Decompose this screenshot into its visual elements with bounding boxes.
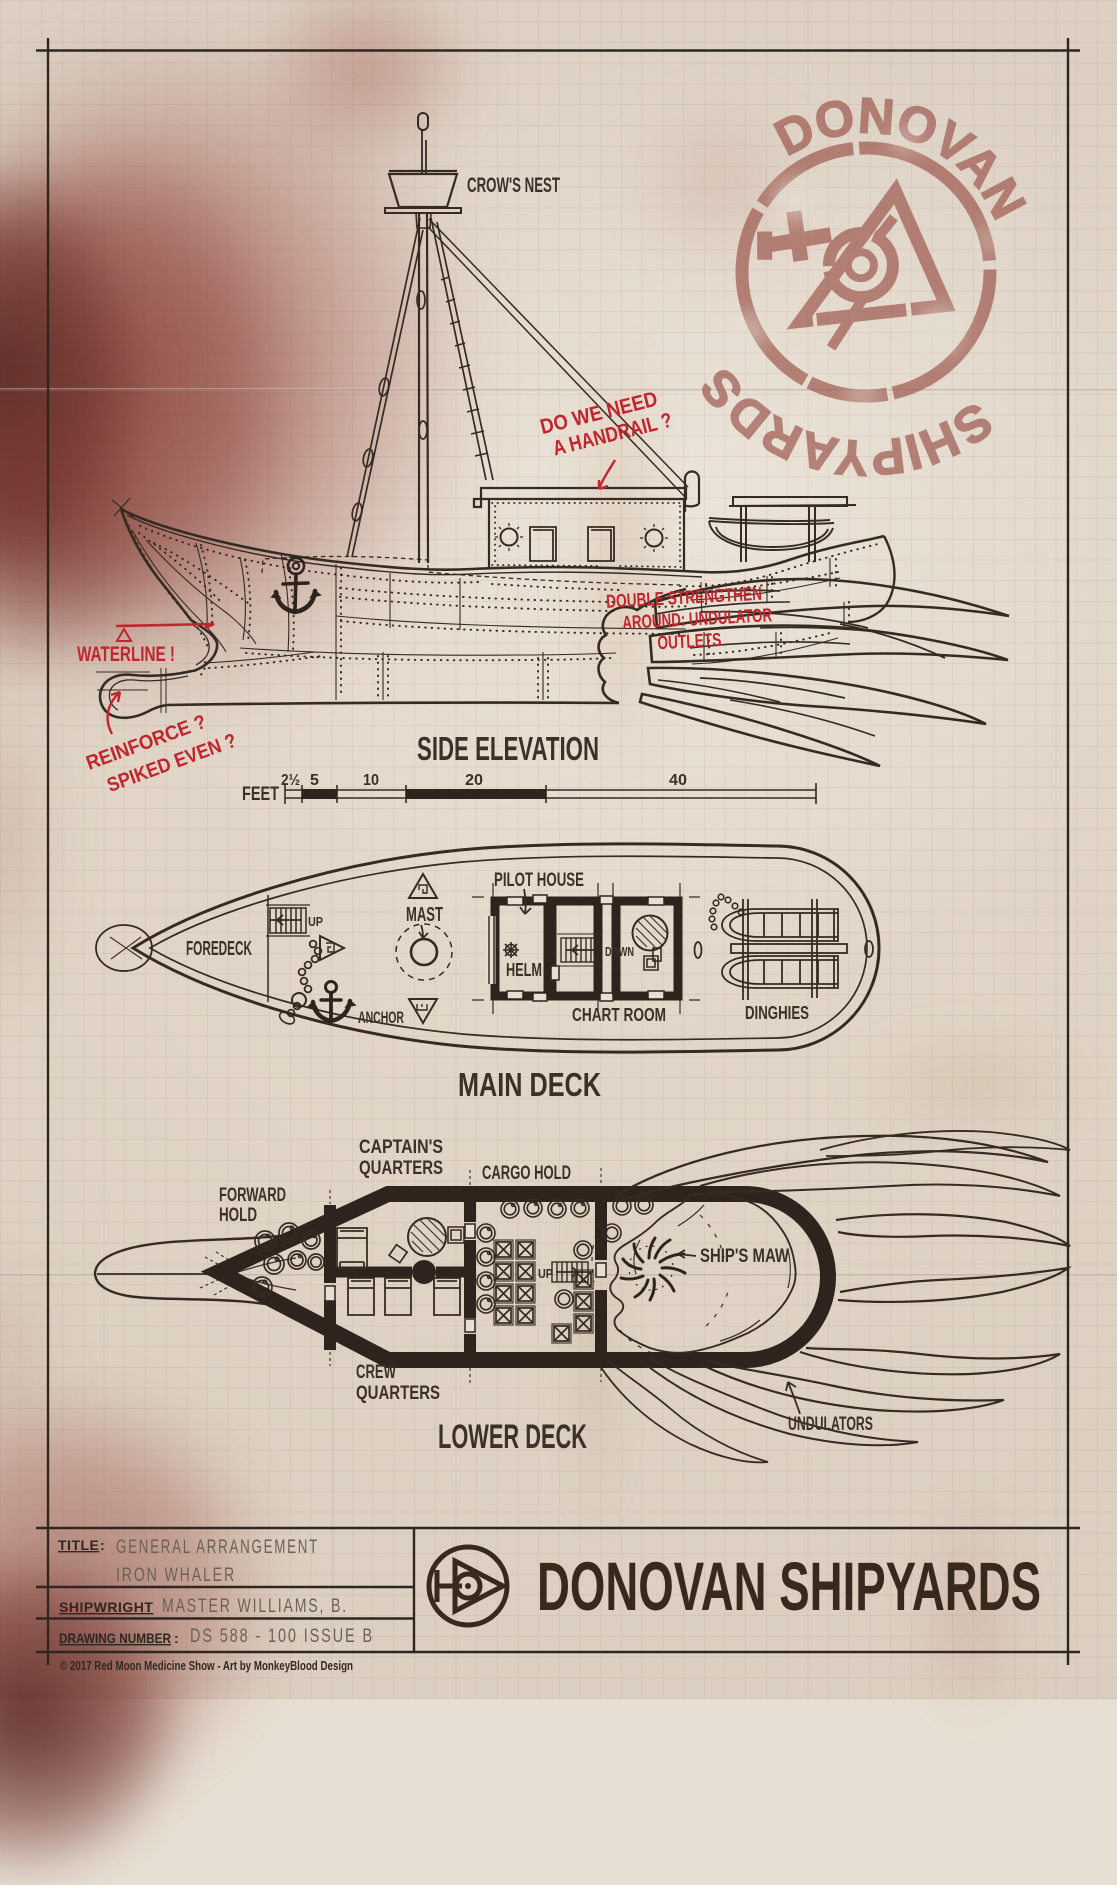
svg-text:QUARTERS: QUARTERS — [356, 1383, 440, 1404]
svg-text:5: 5 — [310, 772, 319, 789]
svg-text:MAST: MAST — [406, 904, 443, 926]
svg-text:FORWARD: FORWARD — [219, 1185, 286, 1206]
svg-text:20: 20 — [465, 772, 483, 789]
svg-text:HOLD: HOLD — [219, 1205, 257, 1226]
svg-text:GENERAL ARRANGEMENT: GENERAL ARRANGEMENT — [116, 1537, 319, 1558]
svg-text:40: 40 — [669, 772, 687, 789]
svg-text:UP: UP — [538, 1266, 553, 1281]
svg-text:WATERLINE !: WATERLINE ! — [77, 643, 175, 666]
svg-text:CROW'S NEST: CROW'S NEST — [467, 174, 560, 197]
svg-text:FEET: FEET — [242, 784, 279, 805]
svg-text:DOWN: DOWN — [605, 944, 634, 959]
svg-text:DRAWING NUMBER: DRAWING NUMBER — [59, 1630, 171, 1646]
svg-text:HELM: HELM — [506, 960, 542, 980]
svg-text:SHIPYARDS: SHIPYARDS — [679, 353, 1008, 507]
svg-text:CHART ROOM: CHART ROOM — [572, 1005, 666, 1025]
svg-text:FOREDECK: FOREDECK — [186, 938, 252, 960]
svg-text::: : — [100, 1537, 105, 1553]
svg-text:OUTLETS: OUTLETS — [657, 630, 722, 654]
svg-text:10: 10 — [363, 772, 379, 789]
svg-text:QUARTERS: QUARTERS — [359, 1158, 443, 1179]
svg-text:IRON WHALER: IRON WHALER — [116, 1565, 236, 1586]
svg-text:DS 588 - 100 ISSUE B: DS 588 - 100 ISSUE B — [190, 1626, 374, 1647]
svg-text:SHIP'S MAW: SHIP'S MAW — [700, 1246, 789, 1267]
svg-text:SHIPWRIGHT: SHIPWRIGHT — [59, 1599, 153, 1615]
svg-text::: : — [174, 1630, 179, 1646]
svg-text:LOWER DECK: LOWER DECK — [438, 1418, 587, 1456]
svg-text:CARGO HOLD: CARGO HOLD — [482, 1163, 571, 1184]
svg-text:PILOT HOUSE: PILOT HOUSE — [494, 870, 584, 891]
svg-text:CREW: CREW — [356, 1362, 396, 1383]
svg-text:MASTER WILLIAMS, B.: MASTER WILLIAMS, B. — [162, 1596, 348, 1617]
svg-text:DONOVAN SHIPYARDS: DONOVAN SHIPYARDS — [537, 1548, 1041, 1625]
svg-text:UP: UP — [308, 914, 323, 929]
svg-text:TITLE: TITLE — [58, 1537, 99, 1553]
svg-text:MAIN DECK: MAIN DECK — [458, 1066, 601, 1103]
svg-text:2½: 2½ — [281, 772, 300, 789]
svg-text:ANCHOR: ANCHOR — [358, 1008, 404, 1027]
svg-text:DINGHIES: DINGHIES — [745, 1003, 809, 1023]
svg-text:CAPTAIN'S: CAPTAIN'S — [359, 1137, 443, 1158]
svg-text::: : — [146, 1599, 151, 1615]
svg-text:SIDE ELEVATION: SIDE ELEVATION — [417, 730, 599, 767]
svg-text:UNDULATORS: UNDULATORS — [788, 1414, 873, 1435]
svg-text:© 2017 Red Moon Medicine Show: © 2017 Red Moon Medicine Show - Art by M… — [60, 1659, 353, 1673]
